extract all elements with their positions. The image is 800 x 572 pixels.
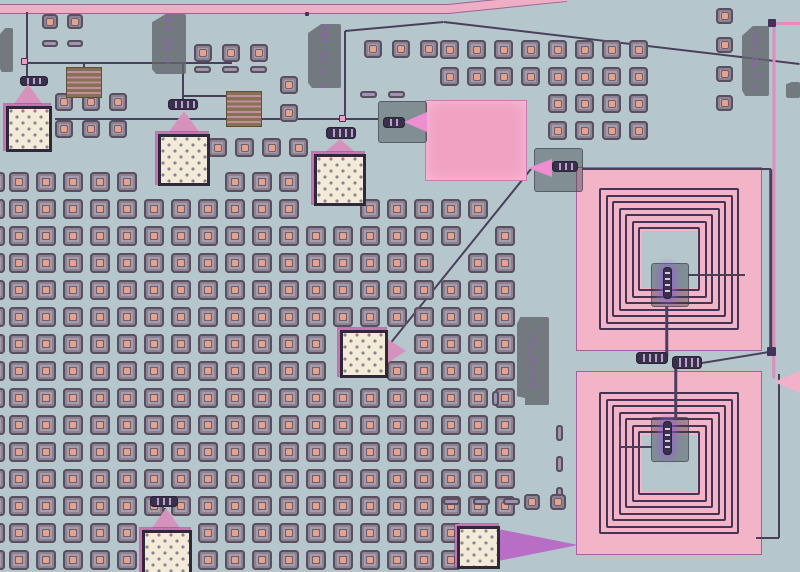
via-square: [171, 361, 191, 381]
via-square: [414, 469, 434, 489]
via-square: [225, 361, 245, 381]
via-square: [9, 523, 29, 543]
via-square: [0, 388, 5, 408]
via-square: [414, 226, 434, 246]
via-square: [252, 388, 272, 408]
via-bar: [556, 456, 563, 472]
via-square: [63, 469, 83, 489]
via-square: [575, 121, 594, 140]
via-square: [0, 442, 5, 462]
spiral-feed-trace: [702, 351, 769, 364]
via-square: [225, 388, 245, 408]
junction-chain: [20, 76, 48, 86]
via-square: [575, 40, 594, 59]
via-square: [441, 226, 461, 246]
via-square: [280, 104, 298, 122]
via-square: [280, 76, 298, 94]
via-square: [171, 469, 191, 489]
via-square: [495, 226, 515, 246]
via-square: [468, 361, 488, 381]
via-bar: [443, 498, 460, 505]
via-square: [90, 172, 110, 192]
via-square: [521, 67, 540, 86]
via-square: [441, 307, 461, 327]
via-square: [333, 469, 353, 489]
capacitor-pad: [425, 100, 527, 181]
via-square: [716, 95, 733, 111]
via-square: [289, 138, 308, 157]
via-square: [117, 307, 137, 327]
via-square: [360, 415, 380, 435]
via-square: [235, 138, 254, 157]
via-square: [252, 226, 272, 246]
junction-chain: [552, 161, 578, 172]
via-square: [360, 307, 380, 327]
via-square: [225, 550, 245, 570]
via-square: [9, 199, 29, 219]
meander-resistor: [66, 67, 102, 98]
via-square: [494, 67, 513, 86]
via-square: [171, 253, 191, 273]
via-square: [225, 226, 245, 246]
bond-pad: [338, 328, 386, 376]
bond-pad-core: [457, 526, 500, 569]
via-square: [90, 469, 110, 489]
via-square: [9, 388, 29, 408]
via-square: [90, 334, 110, 354]
via-square: [414, 388, 434, 408]
via-square: [9, 442, 29, 462]
via-square: [279, 496, 299, 516]
spiral-feed-trace: [688, 274, 745, 276]
junction-chain: [326, 127, 356, 139]
via-square: [36, 199, 56, 219]
via-square: [306, 442, 326, 462]
via-square: [306, 415, 326, 435]
via-square: [495, 280, 515, 300]
via-square: [63, 172, 83, 192]
trace-node-dot: [767, 347, 776, 356]
via-square: [117, 334, 137, 354]
via-square: [63, 388, 83, 408]
via-square: [144, 334, 164, 354]
via-square: [90, 550, 110, 570]
via-square: [198, 523, 218, 543]
via-square: [0, 307, 5, 327]
via-square: [0, 226, 5, 246]
via-square: [360, 280, 380, 300]
via-square: [468, 307, 488, 327]
via-square: [468, 253, 488, 273]
via-square: [387, 199, 407, 219]
via-square: [414, 280, 434, 300]
via-square: [0, 199, 5, 219]
via-square: [117, 172, 137, 192]
via-square: [198, 496, 218, 516]
via-square: [171, 334, 191, 354]
via-square: [63, 415, 83, 435]
label-text: r = 50 ohm: [751, 32, 760, 90]
via-square: [575, 67, 594, 86]
via-square: [144, 469, 164, 489]
via-bar: [492, 391, 499, 406]
label-text: r = 50 ohm: [320, 24, 330, 88]
via-square: [279, 199, 299, 219]
chip-micrograph: r = 50 ohmr = 50 ohmr = 50 ohmsq_quad: [0, 0, 800, 572]
via-square: [306, 469, 326, 489]
via-square: [279, 469, 299, 489]
junction-chain: [672, 356, 702, 369]
via-bar: [250, 66, 267, 73]
via-square: [90, 199, 110, 219]
via-square: [0, 469, 5, 489]
feedline-trace: [0, 4, 449, 14]
via-square: [252, 172, 272, 192]
via-square: [225, 280, 245, 300]
via-square: [63, 199, 83, 219]
via-square: [144, 199, 164, 219]
via-square: [90, 442, 110, 462]
via-square: [414, 253, 434, 273]
via-square: [36, 415, 56, 435]
via-square: [279, 361, 299, 381]
spiral-feed-trace: [675, 368, 678, 420]
via-square: [468, 415, 488, 435]
via-square: [306, 388, 326, 408]
via-square: [171, 226, 191, 246]
via-square: [0, 280, 5, 300]
via-square: [364, 40, 382, 58]
via-square: [144, 361, 164, 381]
via-square: [252, 253, 272, 273]
via-square: [495, 415, 515, 435]
via-square: [387, 469, 407, 489]
feedline-trace: [447, 0, 566, 14]
via-square: [144, 253, 164, 273]
via-square: [9, 469, 29, 489]
via-square: [222, 44, 240, 62]
via-square: [494, 40, 513, 59]
trace-node-dot: [768, 19, 776, 27]
via-square: [198, 550, 218, 570]
via-square: [90, 226, 110, 246]
via-square: [225, 307, 245, 327]
via-square: [716, 37, 733, 53]
via-bar: [503, 498, 520, 505]
via-square: [468, 388, 488, 408]
via-square: [414, 334, 434, 354]
via-square: [306, 253, 326, 273]
via-square: [306, 496, 326, 516]
via-square: [225, 496, 245, 516]
via-square: [36, 469, 56, 489]
via-square: [414, 307, 434, 327]
via-square: [63, 550, 83, 570]
via-square: [0, 172, 5, 192]
via-square: [629, 94, 648, 113]
via-square: [440, 40, 459, 59]
via-square: [225, 334, 245, 354]
bond-pad-core: [142, 530, 192, 572]
via-square: [360, 523, 380, 543]
via-square: [36, 496, 56, 516]
via-square: [495, 307, 515, 327]
via-square: [360, 496, 380, 516]
via-square: [198, 334, 218, 354]
via-square: [252, 523, 272, 543]
via-square: [262, 138, 281, 157]
via-square: [36, 280, 56, 300]
via-square: [9, 334, 29, 354]
via-square: [225, 523, 245, 543]
via-square: [387, 253, 407, 273]
bond-pad: [140, 528, 190, 572]
via-square: [90, 280, 110, 300]
via-square: [82, 120, 100, 138]
via-square: [63, 523, 83, 543]
via-square: [414, 550, 434, 570]
via-square: [279, 415, 299, 435]
via-square: [468, 280, 488, 300]
via-square: [171, 307, 191, 327]
via-square: [225, 415, 245, 435]
via-square: [360, 226, 380, 246]
via-square: [414, 496, 434, 516]
via-square: [441, 388, 461, 408]
via-square: [495, 253, 515, 273]
launcher-taper: [13, 84, 43, 105]
via-bar: [473, 498, 490, 505]
via-square: [171, 442, 191, 462]
spiral-feed-trace: [619, 425, 621, 447]
label-tag-partial: [786, 82, 800, 98]
via-square: [467, 40, 486, 59]
via-square: [306, 307, 326, 327]
via-square: [306, 361, 326, 381]
via-square: [252, 361, 272, 381]
via-square: [252, 334, 272, 354]
via-square: [9, 172, 29, 192]
via-square: [360, 550, 380, 570]
via-square: [0, 496, 5, 516]
bond-pad-core: [6, 106, 52, 152]
bond-pad: [312, 152, 364, 204]
via-square: [36, 550, 56, 570]
via-square: [441, 280, 461, 300]
via-square: [387, 307, 407, 327]
trace-node-dot: [305, 12, 309, 16]
via-square: [109, 93, 127, 111]
via-square: [279, 334, 299, 354]
via-square: [117, 226, 137, 246]
label-text: r = 50 ohm: [164, 12, 174, 76]
via-square: [602, 40, 621, 59]
via-square: [279, 172, 299, 192]
via-square: [441, 442, 461, 462]
via-square: [252, 550, 272, 570]
via-square: [144, 442, 164, 462]
via-square: [36, 226, 56, 246]
via-square: [63, 226, 83, 246]
via-square: [333, 226, 353, 246]
via-square: [0, 253, 5, 273]
via-square: [333, 388, 353, 408]
via-square: [63, 307, 83, 327]
via-square: [117, 550, 137, 570]
drive-line: [772, 24, 775, 352]
via-bar: [360, 91, 377, 98]
via-square: [602, 67, 621, 86]
via-square: [716, 66, 733, 82]
via-square: [225, 442, 245, 462]
via-square: [387, 226, 407, 246]
via-square: [414, 361, 434, 381]
launcher-taper: [498, 529, 578, 561]
via-square: [548, 67, 567, 86]
via-square: [0, 361, 5, 381]
via-square: [602, 94, 621, 113]
via-square: [441, 199, 461, 219]
label-tag-partial: [0, 28, 13, 72]
via-square: [171, 388, 191, 408]
via-square: [144, 307, 164, 327]
via-square: [521, 40, 540, 59]
via-square: [117, 388, 137, 408]
via-bar: [222, 66, 239, 73]
via-square: [171, 280, 191, 300]
signal-trace: [26, 62, 232, 64]
via-square: [279, 253, 299, 273]
via-square: [468, 442, 488, 462]
via-square: [117, 415, 137, 435]
launcher-taper: [168, 111, 200, 133]
via-square: [9, 280, 29, 300]
via-square: [333, 550, 353, 570]
via-square: [441, 361, 461, 381]
via-square: [63, 334, 83, 354]
via-square: [387, 550, 407, 570]
via-square: [117, 442, 137, 462]
via-square: [387, 415, 407, 435]
via-square: [279, 307, 299, 327]
via-square: [36, 253, 56, 273]
via-square: [414, 415, 434, 435]
trace-node-dot: [21, 58, 28, 65]
resistor-label-tag: r = 50 ohm: [152, 14, 186, 74]
bond-pad: [156, 132, 208, 184]
via-square: [36, 442, 56, 462]
via-square: [333, 280, 353, 300]
via-square: [252, 280, 272, 300]
via-square: [36, 388, 56, 408]
via-square: [90, 253, 110, 273]
via-square: [36, 523, 56, 543]
via-square: [0, 334, 5, 354]
via-square: [117, 361, 137, 381]
via-square: [0, 415, 5, 435]
via-square: [225, 469, 245, 489]
spiral-feed-trace: [666, 306, 669, 356]
via-square: [387, 496, 407, 516]
label-text: sq_quad: [528, 333, 539, 389]
launcher-taper: [324, 139, 356, 153]
via-square: [387, 280, 407, 300]
via-square: [575, 94, 594, 113]
via-square: [387, 442, 407, 462]
via-square: [109, 120, 127, 138]
junction-chain: [663, 421, 672, 455]
via-square: [63, 496, 83, 516]
via-square: [279, 226, 299, 246]
via-square: [333, 442, 353, 462]
via-square: [144, 415, 164, 435]
resistor-label-tag: r = 50 ohm: [742, 26, 769, 96]
junction-chain: [383, 117, 405, 128]
via-square: [387, 361, 407, 381]
junction-chain: [663, 267, 672, 299]
via-square: [414, 442, 434, 462]
spiral-feed-trace: [582, 168, 771, 171]
via-square: [9, 361, 29, 381]
via-square: [333, 415, 353, 435]
via-square: [252, 496, 272, 516]
via-square: [629, 121, 648, 140]
junction-chain: [168, 99, 198, 110]
via-square: [495, 334, 515, 354]
via-square: [524, 494, 540, 510]
via-square: [279, 388, 299, 408]
via-square: [198, 388, 218, 408]
via-square: [468, 199, 488, 219]
via-bar: [67, 40, 83, 47]
drive-line: [774, 22, 800, 25]
via-square: [252, 469, 272, 489]
via-square: [279, 550, 299, 570]
via-square: [36, 334, 56, 354]
via-square: [252, 307, 272, 327]
via-square: [306, 523, 326, 543]
via-square: [333, 496, 353, 516]
via-square: [387, 523, 407, 543]
via-square: [495, 469, 515, 489]
via-square: [495, 442, 515, 462]
via-square: [198, 442, 218, 462]
via-square: [198, 253, 218, 273]
via-square: [9, 226, 29, 246]
via-square: [117, 199, 137, 219]
via-square: [548, 121, 567, 140]
via-square: [252, 415, 272, 435]
via-square: [194, 44, 212, 62]
via-square: [360, 253, 380, 273]
via-square: [42, 14, 58, 29]
via-square: [441, 469, 461, 489]
trace-node-dot: [339, 115, 346, 122]
via-square: [225, 172, 245, 192]
via-square: [629, 67, 648, 86]
via-square: [0, 523, 5, 543]
via-square: [198, 307, 218, 327]
via-square: [9, 415, 29, 435]
via-square: [117, 469, 137, 489]
via-square: [440, 67, 459, 86]
via-square: [550, 494, 566, 510]
via-square: [360, 442, 380, 462]
via-square: [9, 496, 29, 516]
via-bar: [42, 40, 58, 47]
via-square: [629, 40, 648, 59]
via-square: [198, 469, 218, 489]
